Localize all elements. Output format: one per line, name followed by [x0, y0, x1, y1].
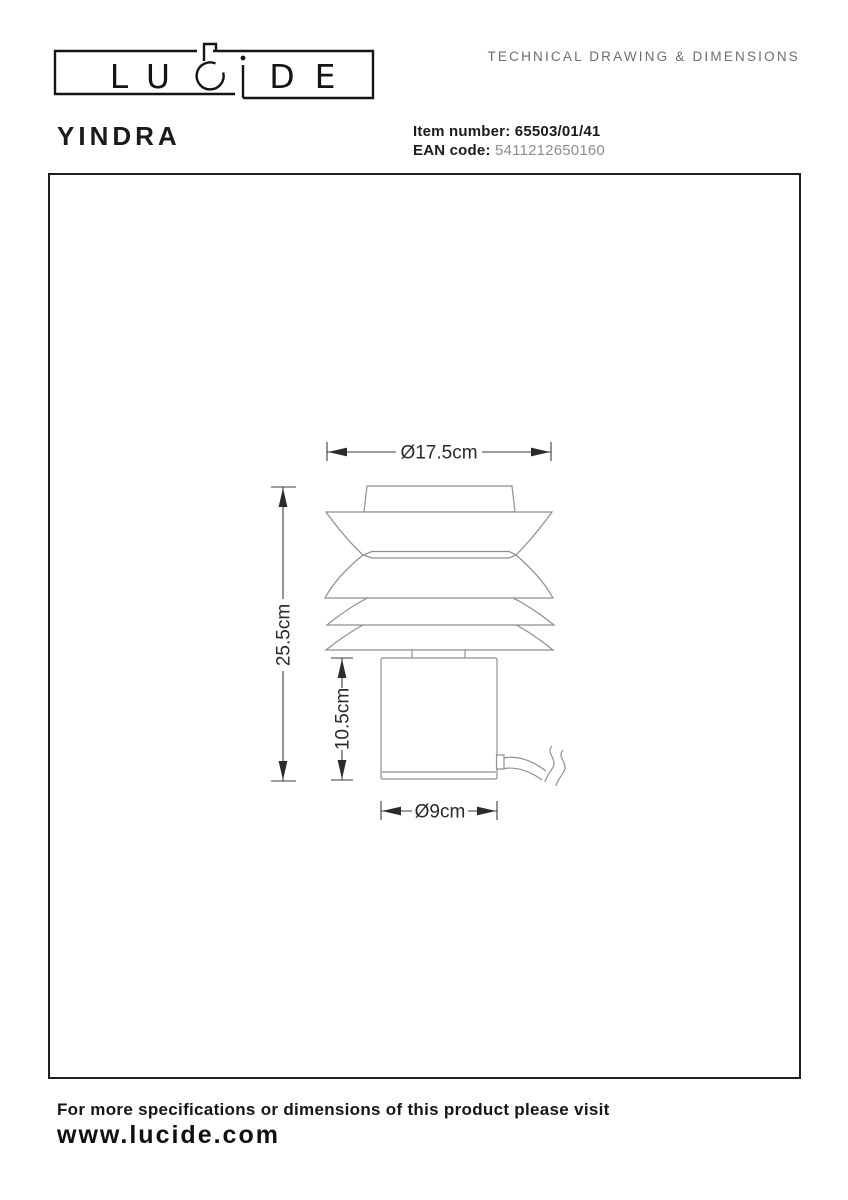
cord-break-squiggle-right	[556, 750, 565, 786]
ean-value: 5411212650160	[495, 142, 605, 159]
technical-drawing: Ø17.5cm 25.5cm 10.5cm Ø9cm	[48, 173, 801, 1079]
lamp-cord-top-edge	[504, 757, 546, 771]
dim-total-height: 25.5cm	[271, 487, 296, 781]
footer-note: For more specifications or dimensions of…	[57, 1100, 610, 1120]
lamp-base	[381, 658, 497, 779]
item-number-row: Item number: 65503/01/41	[413, 122, 605, 141]
item-info-block: Item number: 65503/01/41 EAN code: 54112…	[413, 122, 605, 160]
dim-shade-diameter: Ø17.5cm	[327, 441, 551, 464]
base-diameter-label: Ø9cm	[415, 802, 466, 823]
item-number-value: 65503/01/41	[515, 123, 601, 140]
dim-base-height: 10.5cm	[331, 658, 354, 780]
lamp-top-cap	[364, 486, 515, 512]
arrow-down-icon	[279, 761, 288, 780]
lamp-illustration	[325, 486, 565, 786]
logo-letter-c	[197, 62, 224, 89]
lamp-cord-bottom-edge	[504, 768, 542, 780]
website-link[interactable]: www.lucide.com	[57, 1121, 280, 1150]
arrow-left-icon	[382, 807, 401, 816]
shade-diameter-label: Ø17.5cm	[400, 443, 477, 464]
arrow-down-icon	[338, 760, 347, 779]
item-number-label: Item number:	[413, 123, 510, 140]
lamp-upper-shade	[326, 512, 552, 555]
total-height-label: 25.5cm	[274, 604, 295, 666]
product-name: YINDRA	[57, 121, 181, 152]
technical-drawing-page: { "header": { "doc_title": "TECHNICAL DR…	[0, 0, 848, 1200]
dim-base-diameter: Ø9cm	[381, 800, 497, 823]
arrow-right-icon	[531, 448, 550, 457]
document-title: TECHNICAL DRAWING & DIMENSIONS	[0, 49, 800, 64]
lamp-lower-shade	[325, 555, 553, 598]
cord-break-squiggle-left	[545, 746, 554, 782]
arrow-right-icon	[477, 807, 496, 816]
ean-label: EAN code:	[413, 142, 491, 159]
lamp-cord-plug	[497, 755, 505, 769]
base-height-label: 10.5cm	[333, 688, 354, 750]
arrow-left-icon	[328, 448, 347, 457]
ean-row: EAN code: 5411212650160	[413, 141, 605, 160]
arrow-up-icon	[279, 488, 288, 507]
arrow-up-icon	[338, 659, 347, 678]
